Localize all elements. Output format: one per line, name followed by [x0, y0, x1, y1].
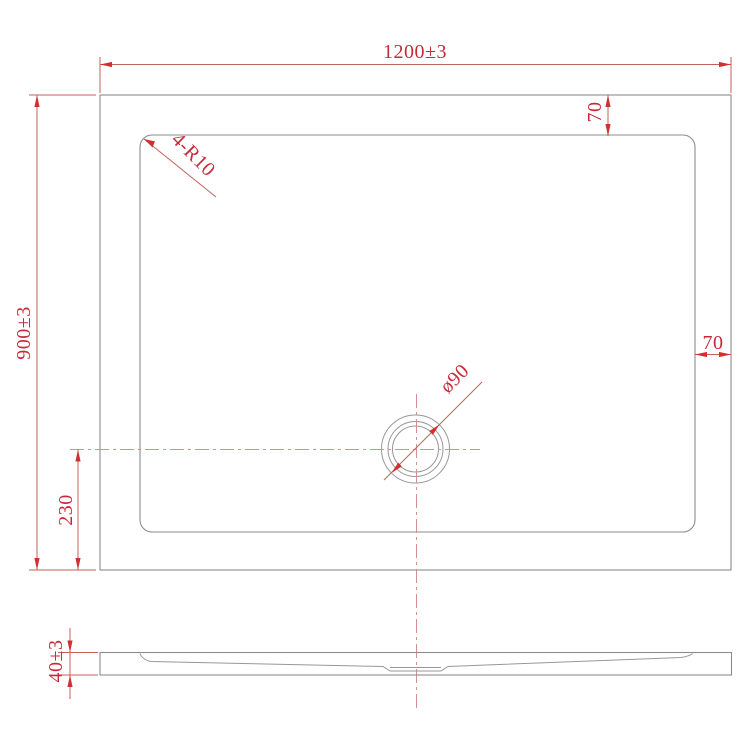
section-view — [100, 653, 732, 676]
corner-radius-label: 4-R10 — [167, 128, 220, 181]
drain-diameter-label: ø90 — [436, 360, 474, 398]
arrowhead-bottom — [605, 124, 610, 136]
plan-view — [70, 95, 731, 708]
dimension-right-margin: 70 — [695, 332, 731, 357]
arrowhead-top — [75, 450, 80, 462]
dimension-top-margin: 70 — [584, 95, 611, 136]
tray-thickness-label: 40±3 — [45, 640, 67, 683]
dimension-overall-width: 1200±3 — [100, 41, 731, 93]
dimension-drain-offset: 230 — [55, 450, 81, 571]
dimension-corner-radius: 4-R10 — [143, 128, 219, 197]
arrowhead-bottom — [34, 558, 39, 570]
plan-inner-rectangle — [140, 135, 695, 532]
arrowhead-left — [100, 62, 112, 67]
overall-width-label: 1200±3 — [383, 41, 447, 63]
overall-depth-label: 900±3 — [13, 306, 35, 359]
section-outline — [100, 653, 732, 676]
drain-offset-label: 230 — [55, 494, 77, 526]
arrowhead-up — [67, 675, 72, 687]
shower-tray-drawing: 1200±3 900±3 70 70 230 40±3 — [0, 0, 750, 750]
arrowhead-right — [719, 62, 731, 67]
arrowhead-bottom — [75, 558, 80, 570]
dimension-tray-thickness: 40±3 — [45, 628, 98, 699]
technical-drawing-page: 1200±3 900±3 70 70 230 40±3 — [0, 0, 750, 750]
arrowhead-top — [34, 95, 39, 107]
top-margin-label: 70 — [584, 102, 606, 123]
arrowhead-top — [605, 95, 610, 107]
arrowhead-down — [67, 641, 72, 653]
right-margin-label: 70 — [703, 332, 724, 354]
